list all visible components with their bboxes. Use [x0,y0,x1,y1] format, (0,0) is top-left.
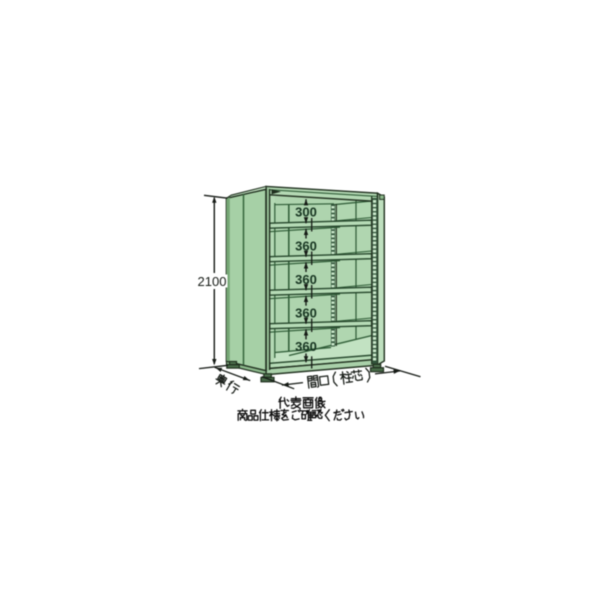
svg-text:300: 300 [295,204,317,219]
svg-text:360: 360 [295,339,317,354]
svg-text:360: 360 [295,238,317,253]
svg-text:360: 360 [295,272,317,287]
svg-text:2100: 2100 [198,274,227,289]
svg-text:360: 360 [295,306,317,321]
